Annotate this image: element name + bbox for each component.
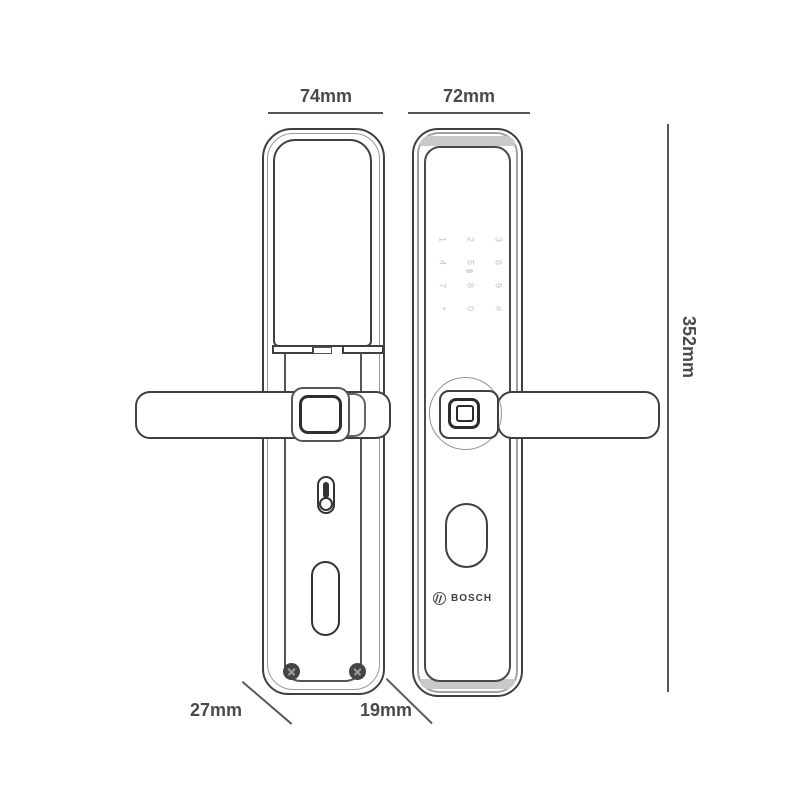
front-handle [497, 391, 660, 439]
height-dimension-line [667, 124, 669, 692]
keypad-extra-mark [466, 269, 473, 273]
cylinder-slot [311, 561, 340, 636]
keypad: 1 2 3 4 5 6 7 8 9 * 0 # [429, 228, 513, 320]
front-width-dimension-line [408, 112, 530, 114]
screw-icon [349, 663, 366, 680]
front-oval-detail [445, 503, 488, 568]
keyhole-slot [323, 482, 329, 498]
back-handle-pivot-ring [299, 395, 342, 434]
front-top-shading [420, 136, 515, 146]
brand-text: BOSCH [451, 593, 492, 604]
fingerprint-sensor-window [456, 405, 474, 422]
keypad-key: # [488, 295, 511, 323]
back-depth-label: 27mm [184, 700, 248, 721]
bosch-symbol-icon [433, 592, 446, 605]
battery-cover [273, 139, 372, 347]
keypad-key: 0 [460, 295, 483, 323]
keyhole-circle [319, 497, 333, 511]
lock-dimension-diagram: 74mm 72mm 352mm 27mm 19mm 1 2 3 4 5 6 7 … [0, 0, 800, 800]
keypad-key: * [432, 295, 455, 323]
height-label: 352mm [678, 316, 699, 378]
front-width-label: 72mm [408, 86, 530, 107]
front-depth-label: 19mm [356, 700, 416, 721]
bosch-logo: BOSCH [433, 591, 492, 606]
back-width-label: 74mm [268, 86, 384, 107]
screw-icon [283, 663, 300, 680]
back-width-dimension-line [268, 112, 383, 114]
